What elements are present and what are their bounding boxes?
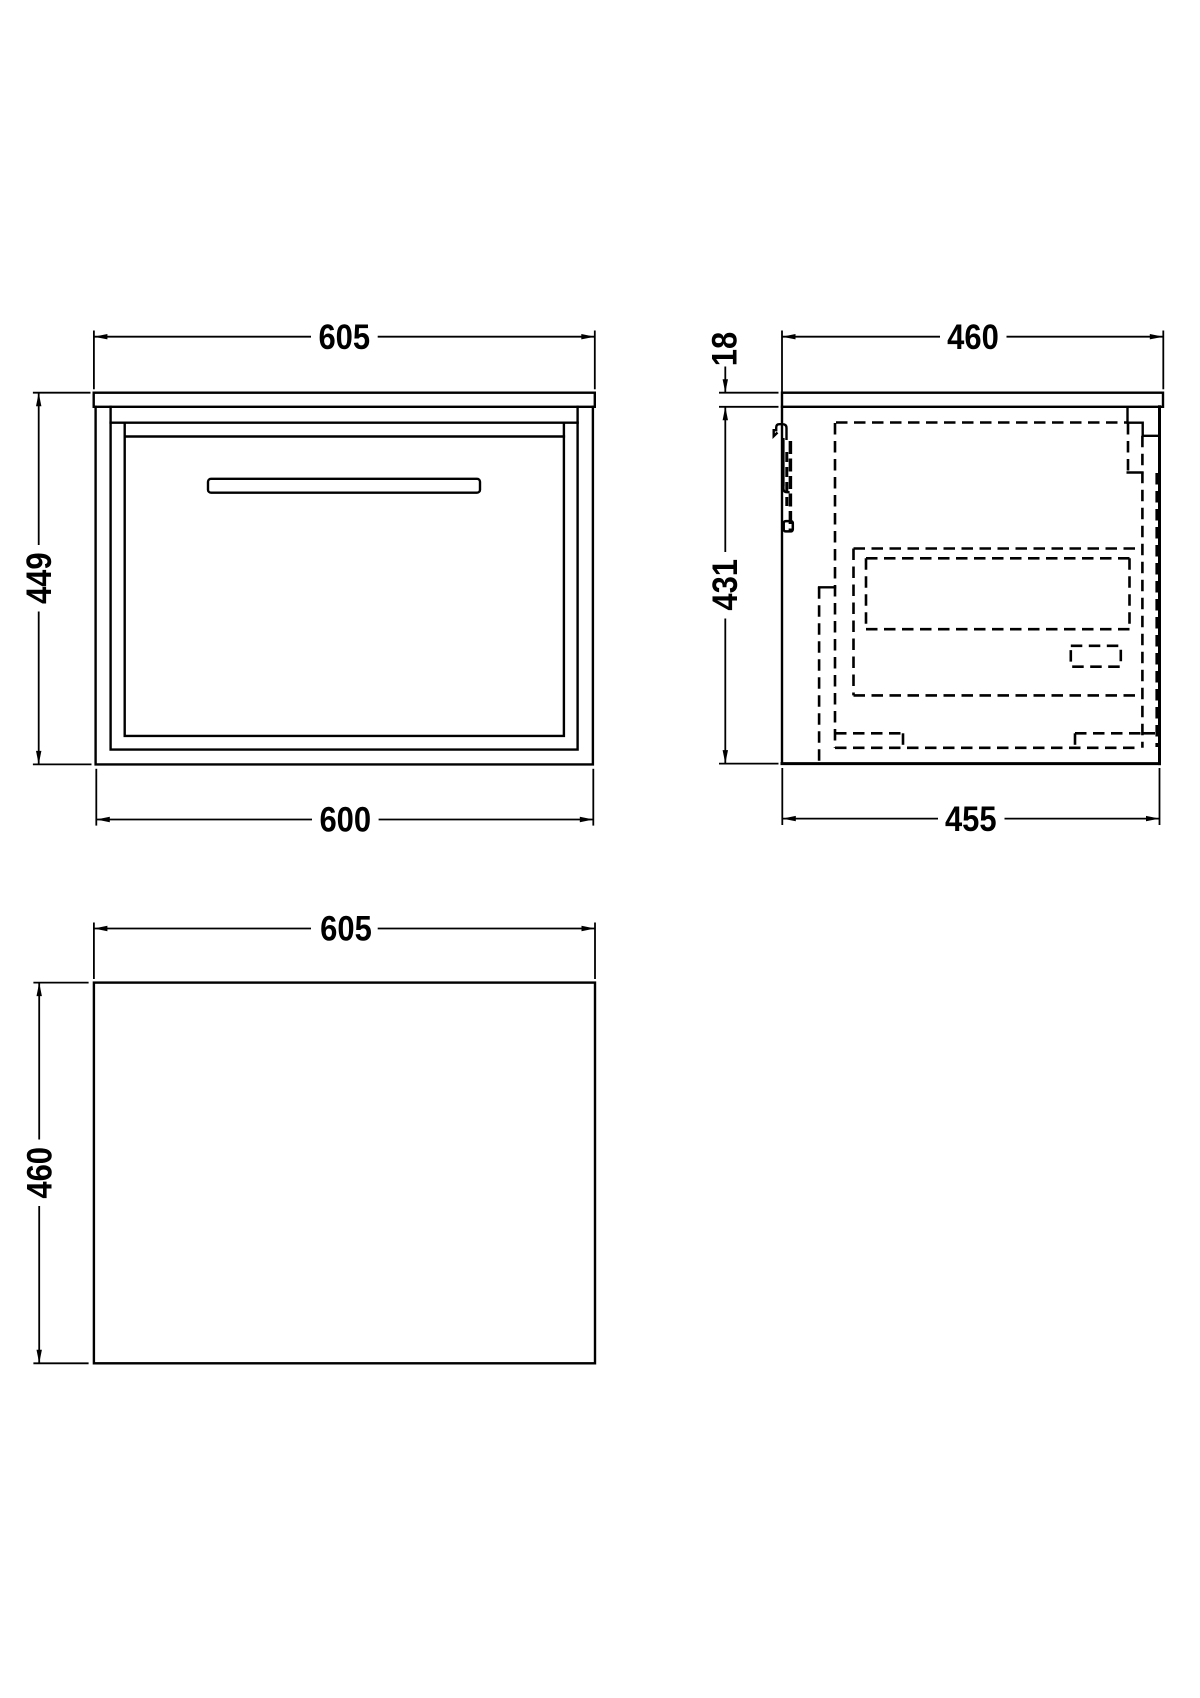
svg-text:460: 460 <box>947 318 999 357</box>
svg-text:600: 600 <box>319 801 371 840</box>
svg-text:605: 605 <box>320 910 372 949</box>
svg-text:455: 455 <box>945 800 997 839</box>
svg-text:18: 18 <box>706 332 745 366</box>
svg-text:460: 460 <box>21 1147 60 1199</box>
svg-text:605: 605 <box>318 318 370 357</box>
svg-text:449: 449 <box>20 552 59 604</box>
svg-text:431: 431 <box>706 559 745 611</box>
